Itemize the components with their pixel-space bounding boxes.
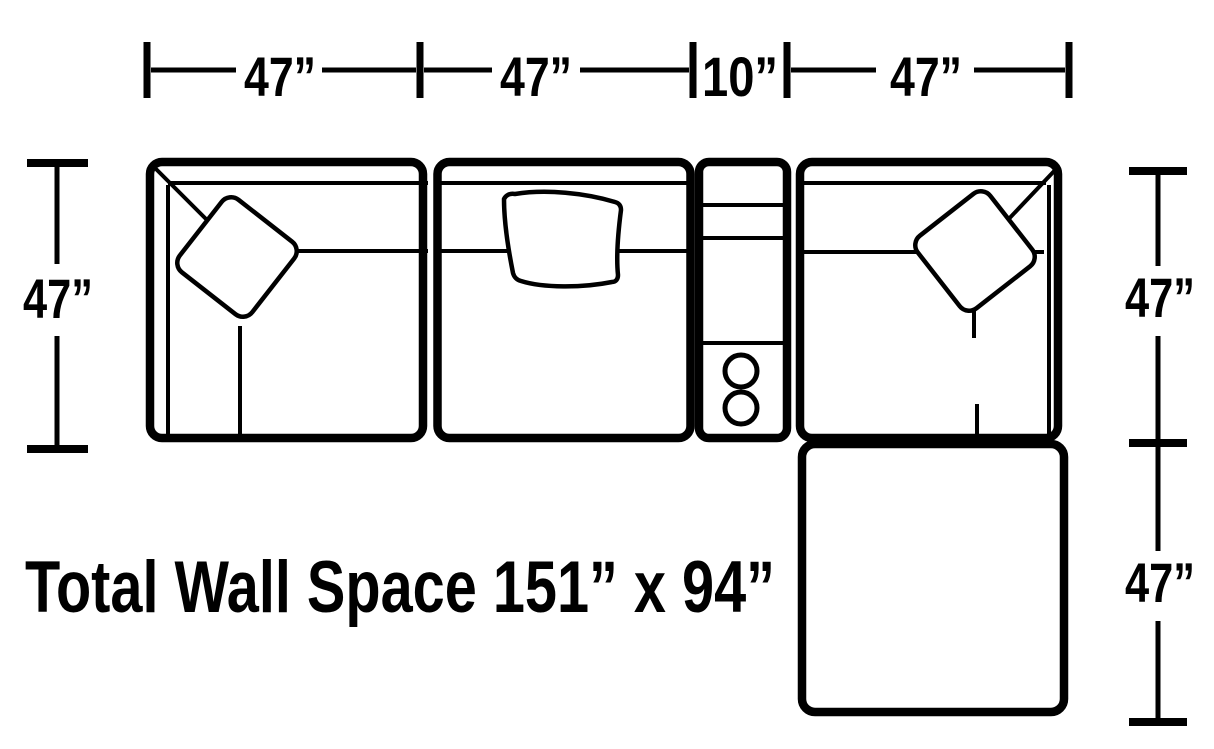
right-dim-label-upper: 47” bbox=[1125, 266, 1195, 329]
sofa-dimension-diagram: 47” 47” 10” 47” 47” 47” 47” bbox=[0, 0, 1214, 749]
cup-holder-icon bbox=[725, 392, 757, 424]
top-dim-label-1: 47” bbox=[244, 45, 316, 108]
back-cushion-middle bbox=[504, 192, 621, 287]
top-dim-label-2: 47” bbox=[500, 45, 572, 108]
right-dimension-line: 47” 47” bbox=[1125, 171, 1195, 722]
right-arm-seat-outline bbox=[800, 162, 1058, 438]
top-dim-label-3: 10” bbox=[702, 45, 778, 108]
right-dim-label-lower: 47” bbox=[1125, 551, 1195, 614]
cup-holder-icon bbox=[725, 355, 757, 387]
chaise-outline bbox=[802, 444, 1064, 712]
top-dimension-line: 47” 47” 10” 47” bbox=[147, 42, 1069, 108]
diagram-canvas: 47” 47” 10” 47” 47” 47” 47” bbox=[0, 0, 1214, 749]
top-dim-label-4: 47” bbox=[890, 45, 962, 108]
total-wall-space-caption: Total Wall Space 151” x 94” bbox=[25, 547, 775, 628]
left-dimension-line: 47” bbox=[23, 163, 93, 449]
left-dim-label: 47” bbox=[23, 267, 93, 330]
